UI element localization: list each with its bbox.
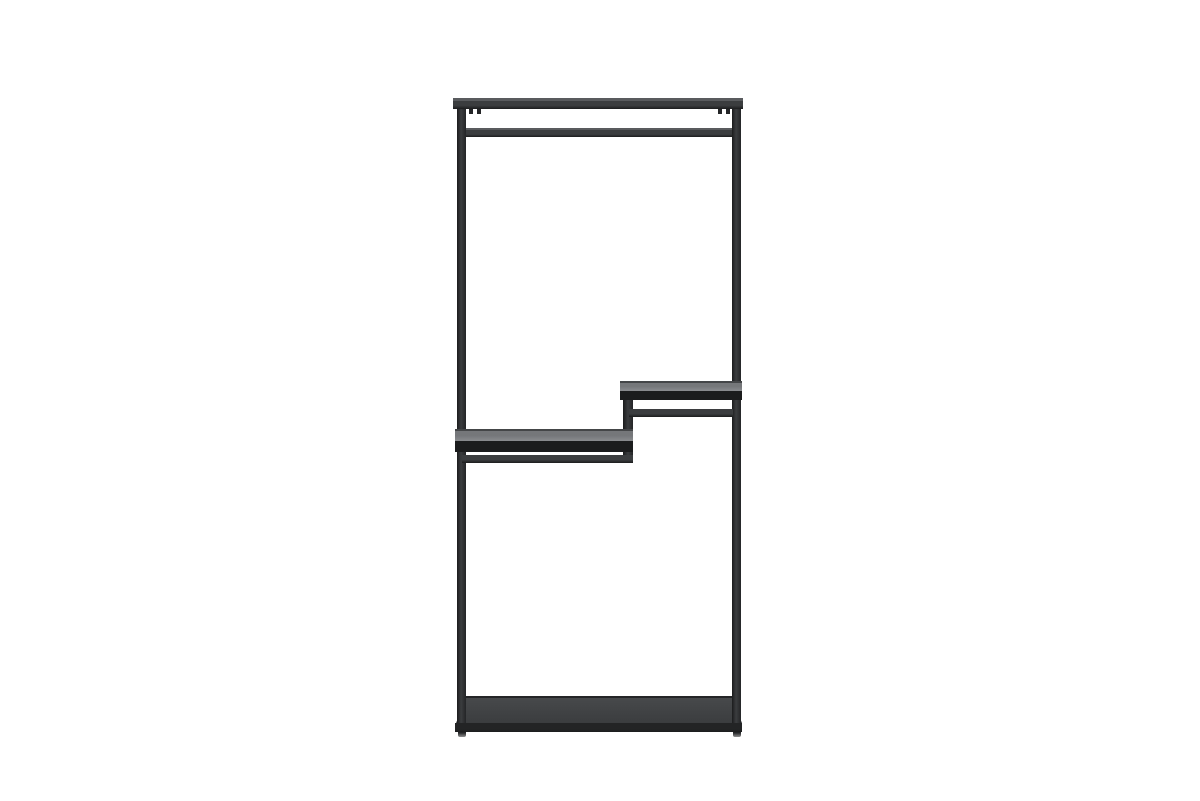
upper-shelf	[620, 381, 742, 400]
lower-shelf	[455, 429, 633, 452]
lower-shelf-surface	[455, 429, 633, 441]
clothes-rack	[0, 0, 1200, 801]
rail-bracket-left-outer	[469, 109, 473, 114]
base-frame-bar	[455, 723, 742, 732]
upper-shelf-front-edge	[620, 391, 742, 400]
upper-shelf-support-rail	[629, 409, 733, 417]
base-shelf-surface	[456, 698, 742, 723]
product-photo	[0, 0, 1200, 801]
rail-bracket-left-inner	[477, 109, 481, 114]
lower-shelf-front-edge	[455, 441, 633, 452]
upper-shelf-surface	[620, 381, 742, 391]
rail-bracket-right-inner	[718, 109, 722, 114]
hanging-rail	[466, 128, 732, 137]
lower-shelf-support-rail	[462, 455, 633, 463]
top-frame-bar	[453, 98, 743, 109]
left-post	[457, 98, 466, 732]
rail-bracket-right-outer	[726, 109, 730, 114]
right-post	[732, 98, 741, 732]
